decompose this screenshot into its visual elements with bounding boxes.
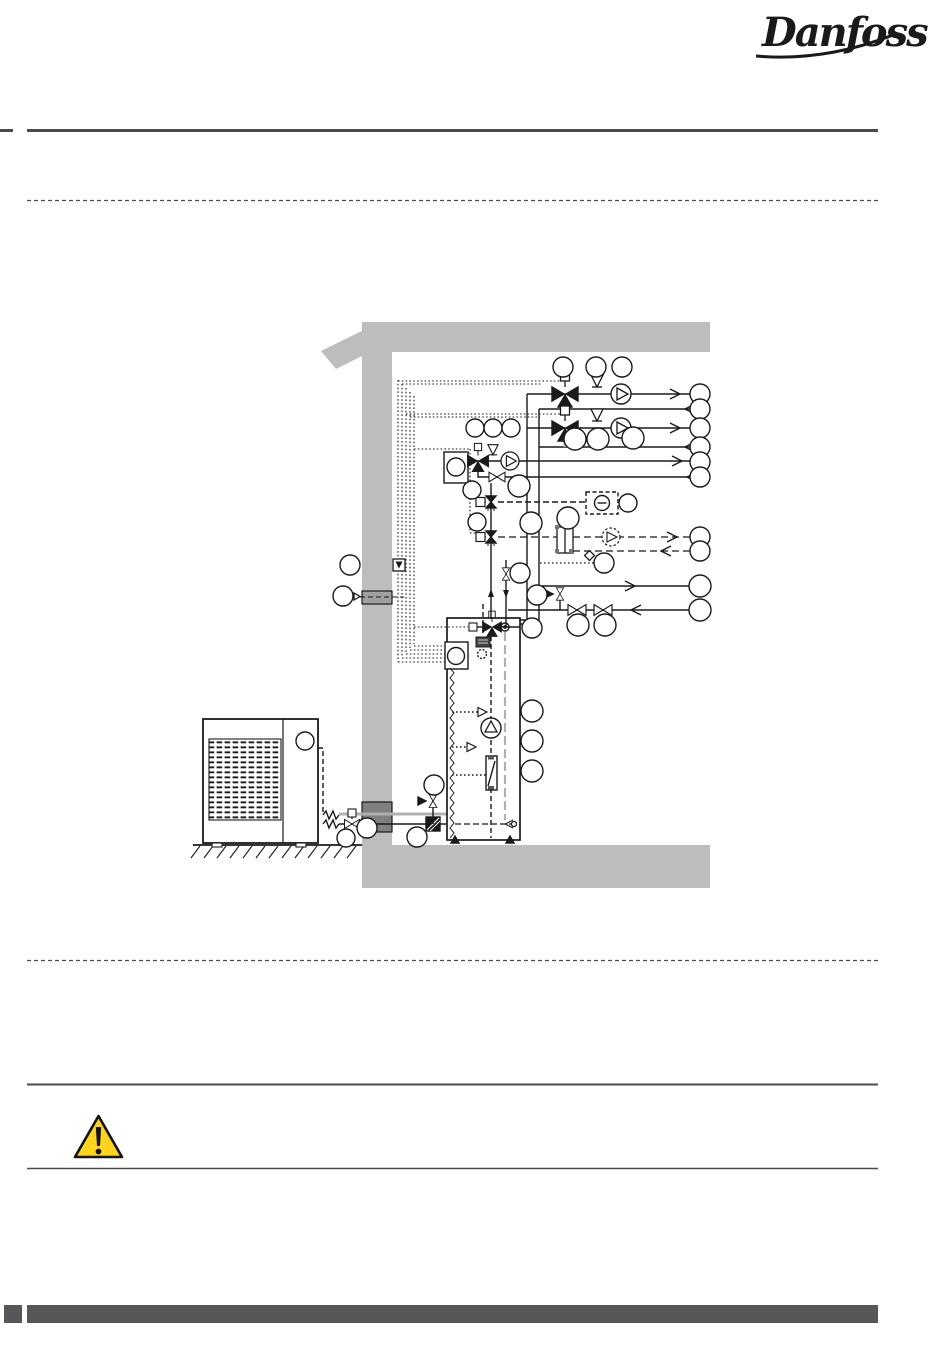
callout-circle	[557, 507, 579, 529]
flow-arrow	[354, 593, 360, 600]
heating-circuit-1	[527, 372, 695, 414]
callout-circle	[690, 467, 710, 487]
danfoss-logo: Danfoss	[756, 9, 928, 57]
callout-circle	[689, 599, 711, 621]
callout-circle	[337, 829, 355, 847]
circulation-pump-icon	[501, 452, 519, 470]
recirculation-pump-icon	[602, 528, 620, 546]
page-canvas: Danfoss	[0, 0, 950, 1360]
warning-triangle-icon	[75, 1116, 122, 1157]
callout-circle	[357, 818, 377, 838]
check-valve-icon	[591, 409, 603, 421]
unit-foot	[212, 843, 222, 847]
callout-circle	[521, 730, 543, 752]
shut-off-valve-icon	[489, 472, 505, 482]
safety-valve-icon	[429, 795, 437, 808]
installation-schematic	[191, 322, 711, 888]
callout-circle	[690, 418, 710, 438]
callout-circle	[484, 419, 502, 437]
callout-circle	[586, 357, 606, 377]
callout-circle	[468, 513, 486, 531]
page-footer	[4, 1305, 878, 1323]
valve-actuator	[469, 623, 477, 631]
callout-circle	[510, 563, 530, 583]
footer-bar	[27, 1305, 878, 1323]
callout-circle	[594, 553, 614, 573]
indoor-tank-unit	[445, 604, 520, 843]
callout-circle	[521, 700, 543, 722]
three-way-mixing-valve-icon	[468, 443, 489, 471]
flexible-hose	[323, 811, 339, 819]
safety-valve-icon	[556, 588, 563, 600]
callout-circle	[553, 357, 573, 377]
callout-circle	[296, 732, 314, 750]
page-rules	[0, 131, 878, 1169]
fan-grille	[209, 739, 281, 820]
flow-arrow-up	[488, 589, 494, 597]
callout-circle	[619, 494, 637, 512]
callout-circle	[502, 419, 520, 437]
callout-circle	[587, 428, 609, 450]
callout-circle	[689, 575, 711, 597]
callout-circle	[594, 614, 616, 636]
sensor-diamond	[585, 551, 595, 561]
callout-circle	[567, 614, 589, 636]
callout-circle	[690, 541, 710, 561]
callout-circle	[622, 427, 644, 449]
callout-circle	[522, 618, 542, 638]
heating-circuit-2	[527, 406, 695, 452]
footer-square	[4, 1305, 22, 1323]
floor-slab	[362, 845, 710, 888]
circulation-pump-icon	[611, 384, 631, 404]
ceiling	[362, 322, 710, 352]
callout-circle	[424, 775, 444, 795]
safety-valve-icon	[502, 568, 509, 580]
motorized-valve-icon	[476, 531, 496, 545]
valve-actuator	[348, 809, 356, 817]
unit-foot	[296, 843, 306, 847]
callout-circle	[527, 585, 547, 605]
callout-circle	[508, 475, 530, 497]
callout-circle	[340, 555, 360, 575]
callout-circle	[463, 481, 481, 499]
motorized-valve-icon	[476, 496, 496, 510]
callout-circle	[612, 357, 632, 377]
flexible-hose	[323, 820, 339, 828]
callout-circle	[520, 512, 542, 534]
document-page: Danfoss	[0, 0, 950, 1360]
flow-arrow	[418, 797, 426, 805]
callout-circle	[466, 419, 484, 437]
check-valve-icon	[488, 445, 498, 455]
callout-circle	[564, 428, 586, 450]
callout-circle	[690, 399, 710, 419]
callout-circle	[521, 760, 543, 782]
flow-arrow-down	[503, 590, 509, 598]
callout-circle	[333, 586, 353, 606]
callout-circle	[407, 827, 427, 847]
terminal-block	[476, 637, 490, 647]
circulation-pump-icon	[481, 718, 501, 738]
